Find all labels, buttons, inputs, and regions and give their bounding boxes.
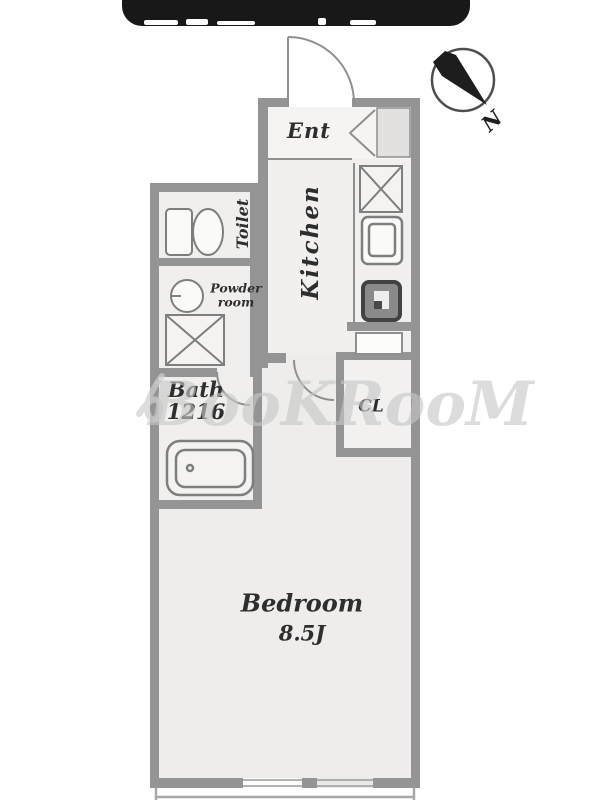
wall-segment (150, 183, 262, 192)
compass-icon (432, 49, 494, 111)
washer-icon (166, 315, 224, 365)
stove-icon (363, 282, 400, 320)
wall-segment (336, 448, 420, 457)
powder-room-label-line2: room (218, 295, 255, 310)
toilet-label: Toilet (233, 199, 253, 249)
wall-segment (352, 98, 420, 107)
bedroom-label: Bedroom8.5J (241, 589, 363, 648)
toilet-bowl (193, 209, 223, 255)
refrigerator-icon (360, 166, 402, 212)
wall-segment (159, 258, 253, 266)
sink-icon (171, 280, 203, 312)
wall-segment (150, 183, 159, 788)
wall-segment (411, 98, 420, 788)
powder-room-label: Powderroom (210, 282, 261, 311)
entrance-label: Ent (287, 118, 331, 144)
entry-door (288, 37, 354, 103)
wall-segment (258, 353, 286, 363)
kitchen-sink-icon (362, 217, 402, 264)
bathtub-drain (187, 465, 193, 471)
stove-knob (374, 301, 382, 309)
wall-segment (347, 322, 411, 331)
counter (356, 333, 402, 354)
floorplan-screen: Ent Kitchen Toilet Powderroom Bath1216 C… (0, 0, 600, 800)
powder-room-label-line1: Powder (210, 281, 261, 296)
wall-segment (302, 778, 317, 788)
door-arc (288, 37, 354, 103)
wall-segment (150, 500, 262, 509)
compass-needle (433, 51, 487, 105)
balcony-lines (156, 788, 414, 800)
wall-segment (258, 98, 289, 107)
bathtub-icon (167, 441, 253, 495)
bedroom-size-label: 8.5J (279, 621, 325, 646)
wall-segment (150, 778, 243, 788)
bedroom-label-line1: Bedroom (241, 589, 363, 618)
toilet-tank (166, 209, 192, 255)
kitchen-label: Kitchen (297, 184, 325, 299)
shoe-cabinet (377, 108, 410, 157)
watermark-text: BooKRooM (148, 369, 488, 440)
kitchen-sink-inner (369, 224, 395, 256)
wall-segment (373, 778, 420, 788)
